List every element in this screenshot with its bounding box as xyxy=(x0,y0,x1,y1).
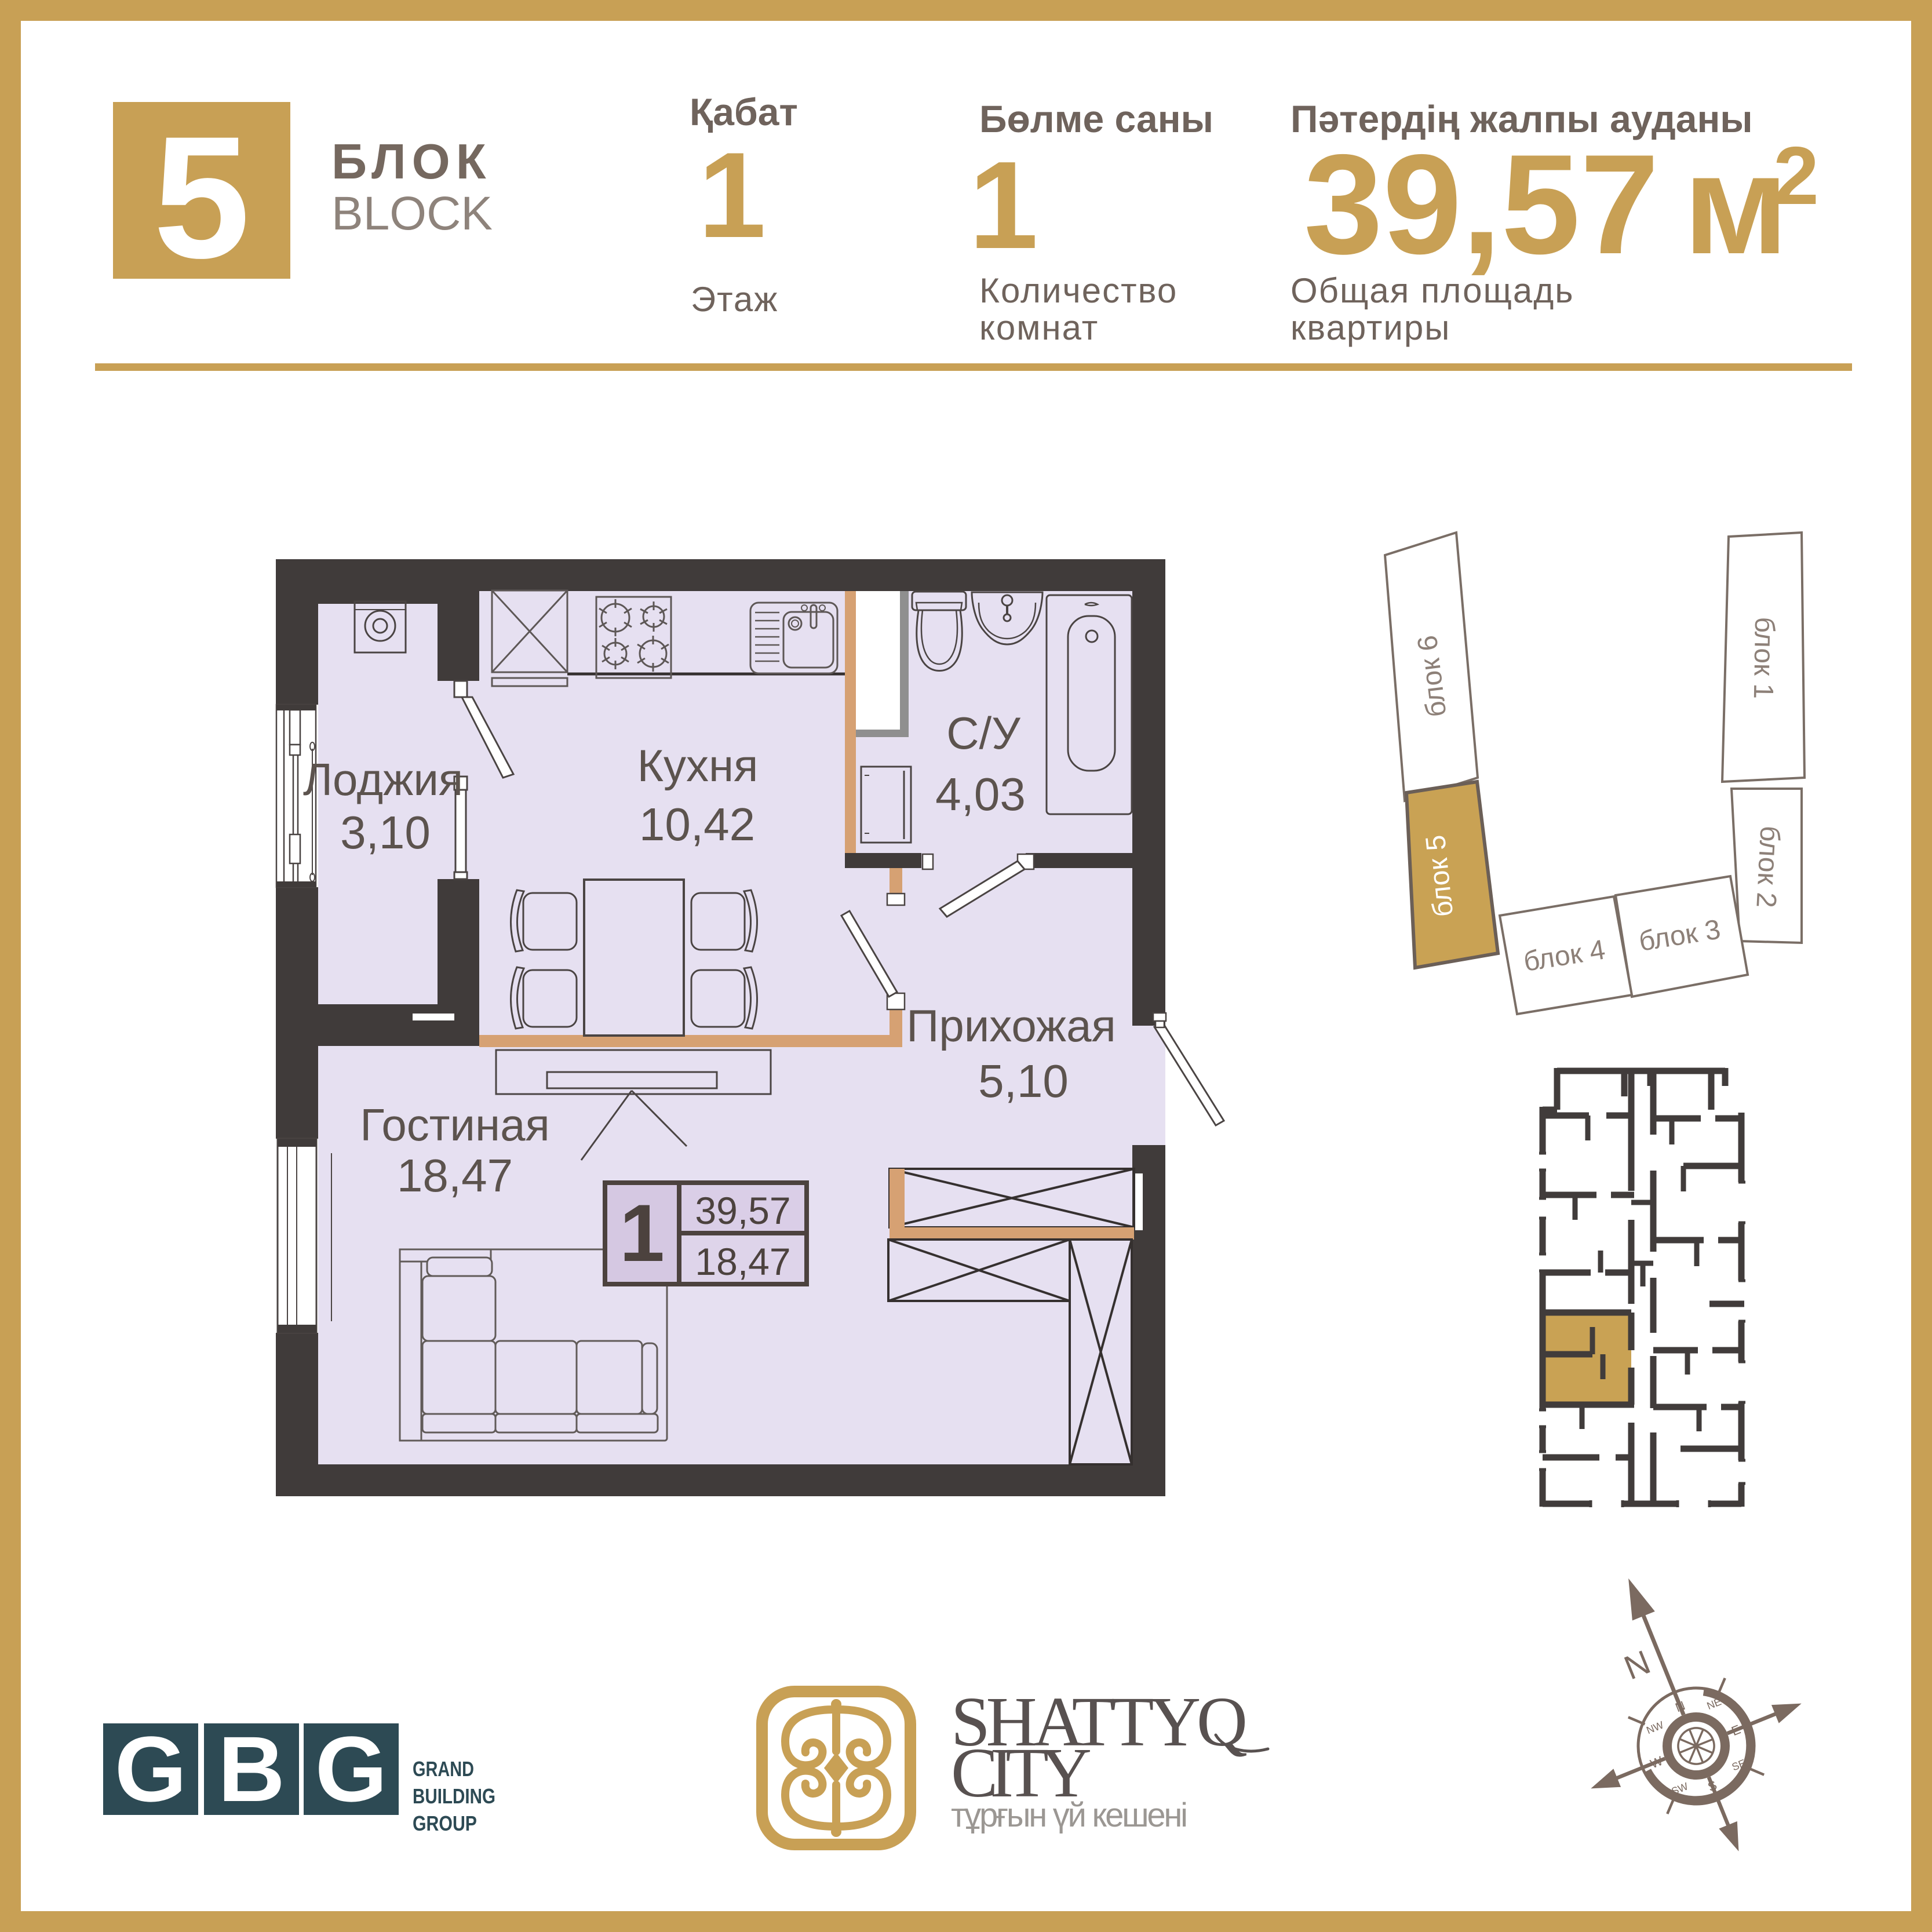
svg-text:блок 2: блок 2 xyxy=(1750,825,1785,909)
svg-text:С/У: С/У xyxy=(946,708,1020,759)
svg-text:BLOCK: BLOCK xyxy=(331,187,493,240)
svg-text:Общая площадь: Общая площадь xyxy=(1291,271,1574,310)
svg-text:39,57: 39,57 xyxy=(695,1189,790,1232)
svg-text:GRAND: GRAND xyxy=(413,1757,474,1781)
svg-text:18,47: 18,47 xyxy=(695,1240,790,1283)
svg-text:комнат: комнат xyxy=(979,308,1099,347)
svg-text:Гостиная: Гостиная xyxy=(360,1099,549,1150)
svg-text:1: 1 xyxy=(698,127,766,263)
svg-text:Лоджия: Лоджия xyxy=(303,754,463,805)
svg-text:блок 1: блок 1 xyxy=(1748,617,1780,699)
svg-text:G: G xyxy=(115,1717,187,1821)
svg-text:5,10: 5,10 xyxy=(978,1055,1069,1107)
svg-text:БЛОК: БЛОК xyxy=(331,134,492,189)
svg-text:квартиры: квартиры xyxy=(1291,308,1450,347)
svg-text:Бөлме саны: Бөлме саны xyxy=(979,97,1213,140)
svg-text:1: 1 xyxy=(969,135,1038,275)
svg-text:Этаж: Этаж xyxy=(691,280,778,319)
svg-text:тұрғын үй кешені: тұрғын үй кешені xyxy=(951,1796,1188,1834)
svg-text:3,10: 3,10 xyxy=(340,807,431,858)
svg-text:2: 2 xyxy=(1773,130,1819,222)
svg-text:10,42: 10,42 xyxy=(639,799,755,850)
svg-text:Прихожая: Прихожая xyxy=(906,1000,1116,1051)
svg-text:GROUP: GROUP xyxy=(413,1811,477,1835)
svg-text:G: G xyxy=(315,1717,387,1821)
svg-text:5: 5 xyxy=(154,100,250,294)
svg-text:BUILDING: BUILDING xyxy=(413,1784,495,1808)
svg-text:39,57: 39,57 xyxy=(1304,125,1659,283)
svg-text:4,03: 4,03 xyxy=(935,768,1026,820)
svg-text:18,47: 18,47 xyxy=(397,1150,513,1201)
svg-text:Кухня: Кухня xyxy=(637,740,759,791)
svg-text:1: 1 xyxy=(619,1187,665,1278)
svg-text:Количество: Количество xyxy=(979,271,1178,310)
svg-text:B: B xyxy=(218,1717,285,1821)
